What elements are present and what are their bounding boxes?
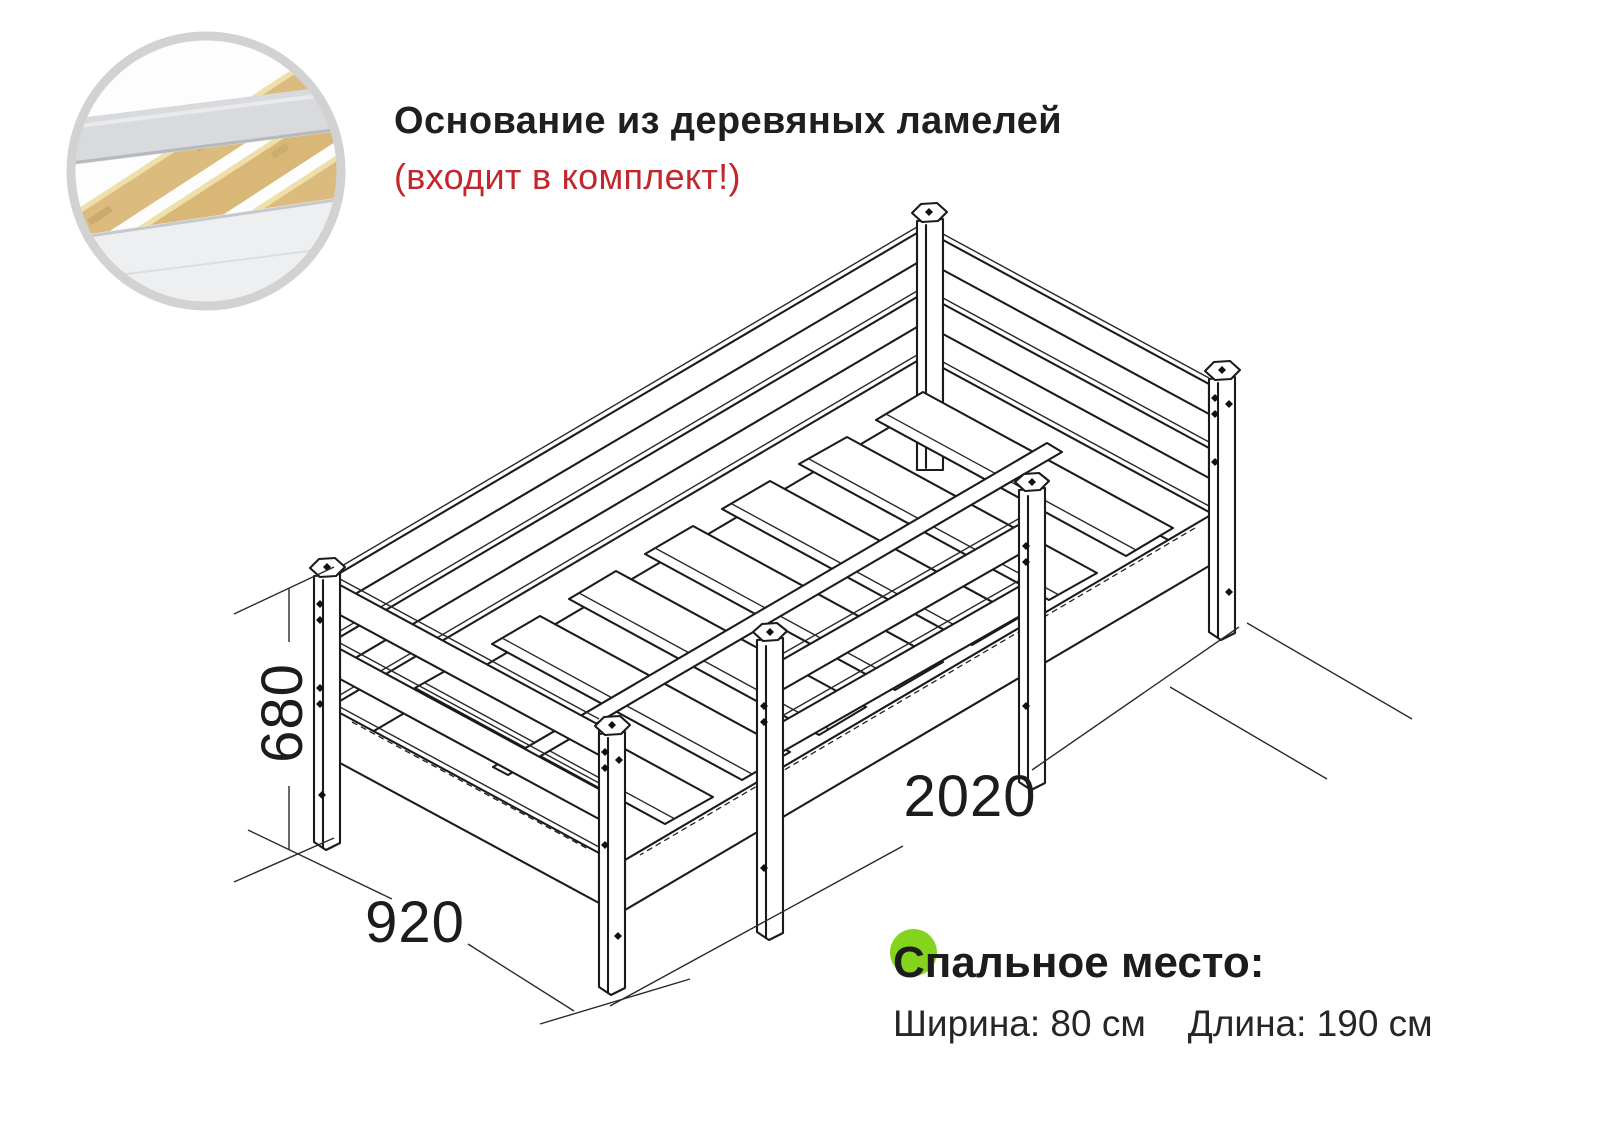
dimension-height-label: 680	[251, 603, 315, 823]
post-front-foot	[595, 716, 630, 995]
safety-rail-post-left	[753, 623, 787, 940]
floor-lines	[1170, 623, 1412, 779]
sleeping-width-spec: Ширина: 80 см	[893, 1003, 1146, 1045]
sleeping-area-heading: Спальное место:	[893, 938, 1264, 988]
sleeping-area-specs: Ширина: 80 см Длина: 190 см	[893, 1003, 1433, 1045]
dimension-width-label: 920	[305, 891, 525, 955]
post-back-foot	[310, 558, 345, 850]
post-front-head	[1205, 361, 1240, 640]
infographic-canvas: Основание из деревяных ламелей (входит в…	[0, 0, 1600, 1135]
safety-rail-post-right	[1015, 473, 1049, 790]
dimension-length-label: 2020	[840, 765, 1100, 829]
sleeping-length-spec: Длина: 190 см	[1188, 1003, 1433, 1045]
main-title: Основание из деревяных ламелей	[394, 100, 1062, 143]
slats-photo-inset	[60, 25, 352, 317]
included-note: (входит в комплект!)	[394, 156, 741, 198]
